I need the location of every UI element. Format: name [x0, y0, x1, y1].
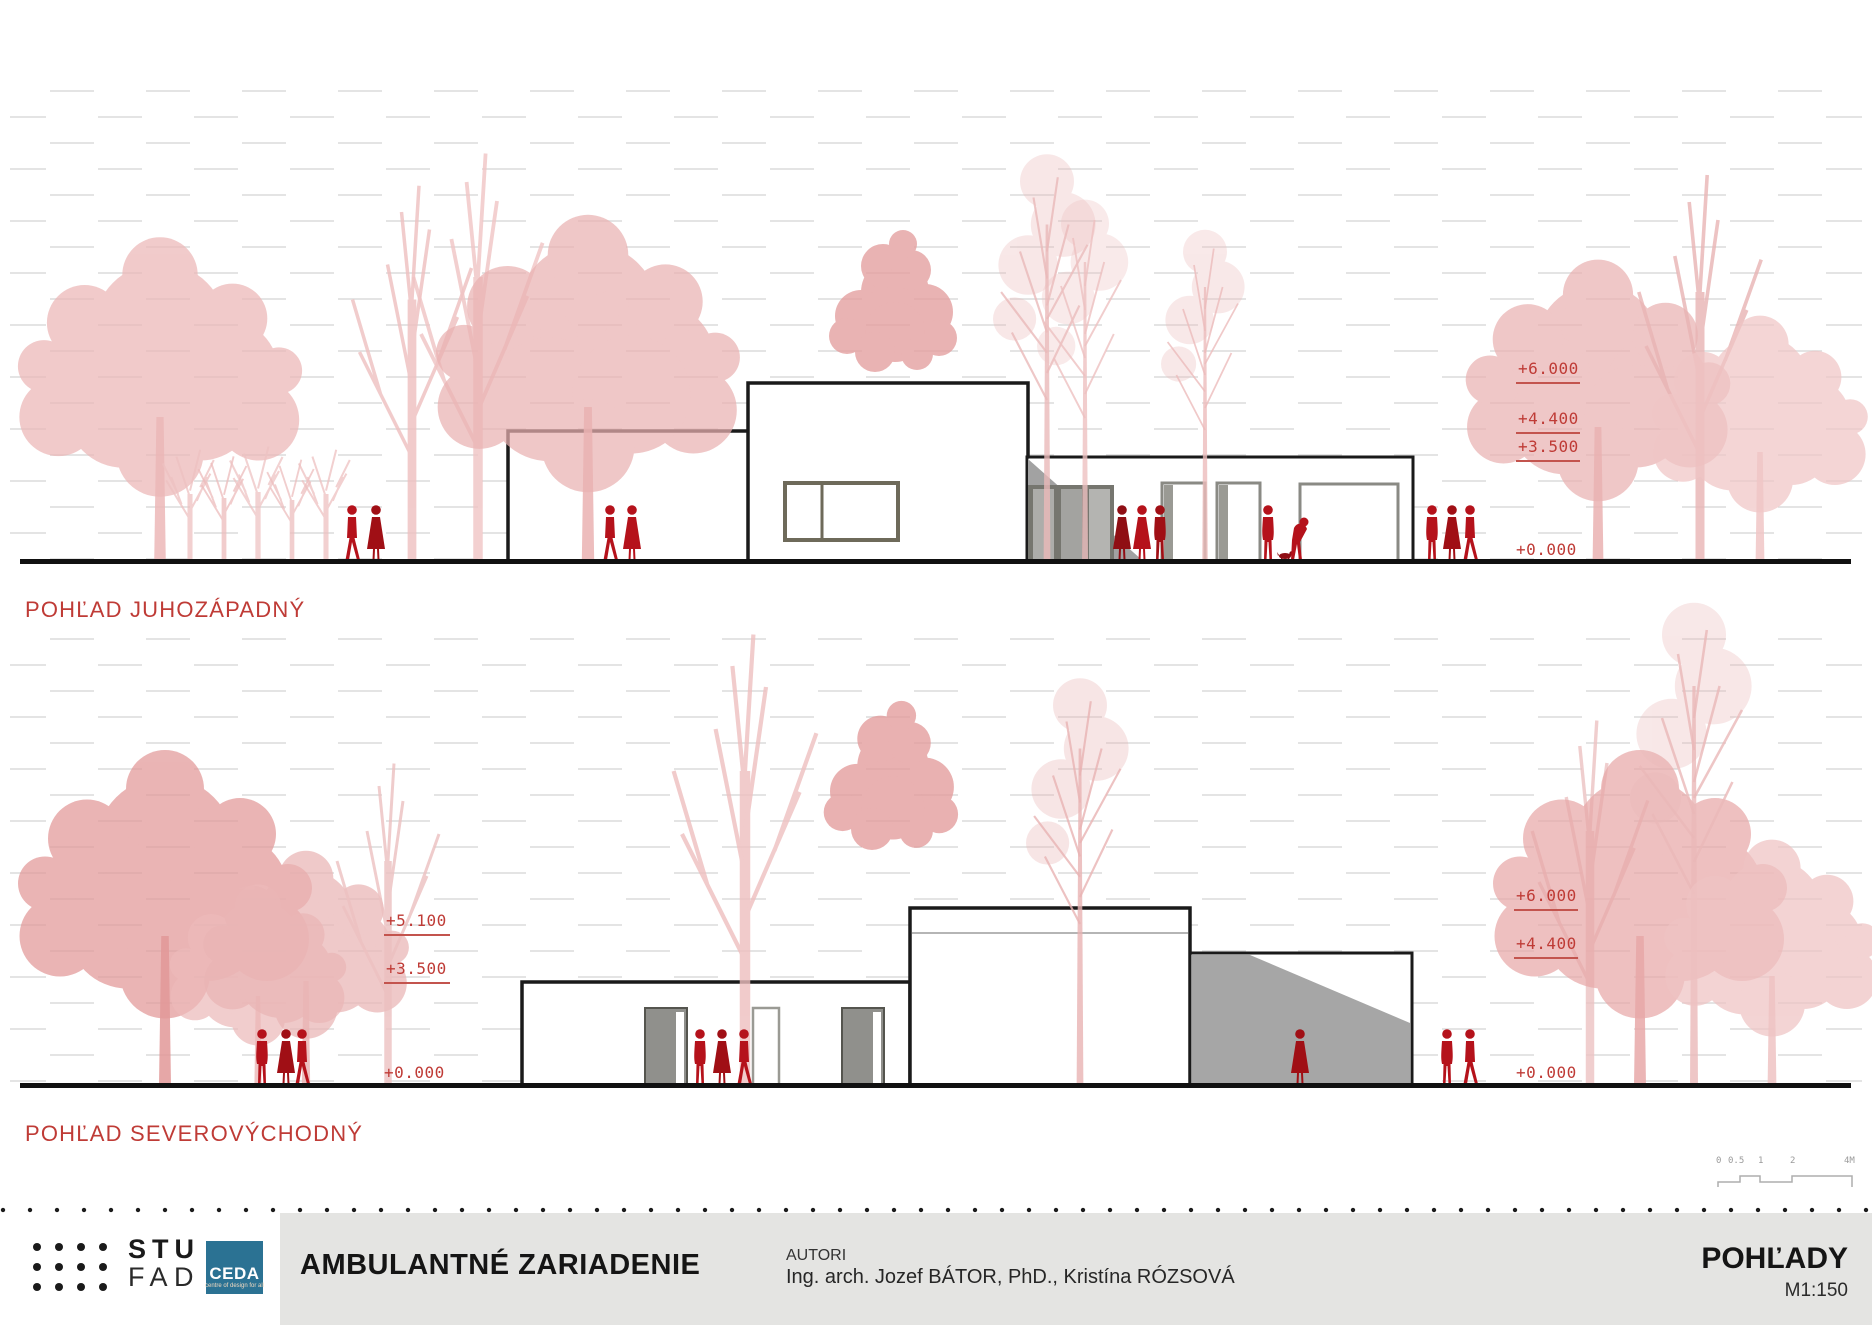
level-marker: +0.000 — [1516, 540, 1577, 559]
level-marker: +4.400 — [1518, 409, 1579, 428]
level-marker-line — [384, 934, 450, 936]
ceda-logo: CEDA centre of design for all — [206, 1241, 263, 1294]
level-marker: +5.100 — [386, 911, 447, 930]
ceda-logo-subtext: centre of design for all — [205, 1282, 264, 1290]
level-marker: +6.000 — [1516, 886, 1577, 905]
level-marker: +3.500 — [1518, 437, 1579, 456]
glazed-doors — [1028, 485, 1114, 561]
ceda-logo-text: CEDA — [209, 1265, 259, 1282]
sheet-title: POHĽADY — [1701, 1242, 1848, 1276]
scale-bar-label: 4M — [1844, 1156, 1855, 1166]
authors-label: AUTORI — [786, 1247, 846, 1265]
scale-bar-label: 0.5 — [1728, 1156, 1744, 1166]
elevation-top-drawing — [0, 0, 1872, 580]
level-marker: +0.000 — [1516, 1063, 1577, 1082]
scale-bar-label: 0 — [1716, 1156, 1721, 1166]
scale-bar: 0 0.5 1 2 4M — [1700, 1156, 1870, 1200]
level-marker-line — [1516, 432, 1580, 434]
level-marker-line — [1516, 382, 1580, 384]
stu-logo-dots — [33, 1243, 107, 1291]
project-title: AMBULANTNÉ ZARIADENIE — [300, 1249, 700, 1282]
sheet-scale: M1:150 — [1785, 1280, 1848, 1302]
stu-logo-text: STU — [128, 1236, 200, 1263]
level-marker: +3.500 — [386, 959, 447, 978]
fad-logo-text: FAD — [128, 1264, 200, 1291]
level-marker-line — [1514, 957, 1578, 959]
level-marker: +6.000 — [1518, 359, 1579, 378]
scale-bar-label: 1 — [1758, 1156, 1763, 1166]
building-tall-block — [910, 908, 1190, 1086]
elevation-sheet: { "colors": { "accent_red": "#bf3b36", "… — [0, 0, 1872, 1325]
level-marker: +4.400 — [1516, 934, 1577, 953]
level-marker-line — [1516, 460, 1580, 462]
scale-bar-label: 2 — [1790, 1156, 1795, 1166]
authors-names: Ing. arch. Jozef BÁTOR, PhD., Kristína R… — [786, 1266, 1235, 1289]
level-marker-line — [384, 982, 450, 984]
window-tall-block — [785, 483, 898, 540]
level-marker-line — [1514, 909, 1578, 911]
elevation-bottom-drawing — [0, 600, 1872, 1110]
level-marker: +0.000 — [384, 1063, 445, 1082]
door-openings — [645, 1008, 884, 1086]
elevation-title-northeast: POHĽAD SEVEROVÝCHODNÝ — [25, 1121, 363, 1147]
elevation-title-southwest: POHĽAD JUHOZÁPADNÝ — [25, 597, 305, 623]
